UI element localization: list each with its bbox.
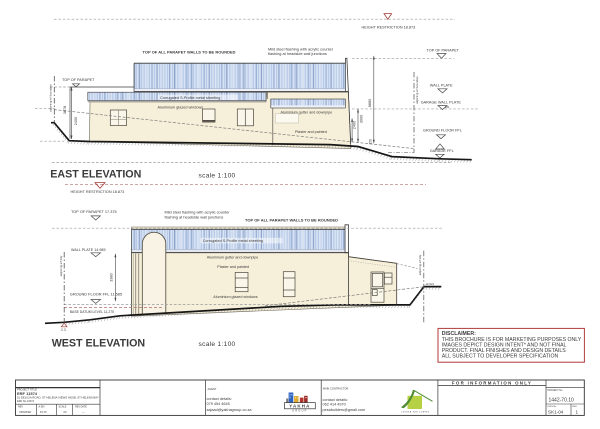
svg-text:11.11: 11.11: [61, 329, 67, 332]
svg-text:3000: 3000: [360, 115, 364, 123]
svg-text:GARAGE WALL PLATE: GARAGE WALL PLATE: [421, 101, 462, 105]
svg-text:Aluminium glazed windows: Aluminium glazed windows: [213, 295, 257, 299]
svg-text:ALL SUBJECT TO DEVELOPER SPECI: ALL SUBJECT TO DEVELOPER SPECIFICATION: [442, 353, 559, 359]
svg-text:TOP OF PARAPET: TOP OF PARAPET: [62, 78, 95, 82]
svg-text:079 454 4645: 079 454 4645: [207, 402, 230, 406]
svg-text:pesabuilders@gmail.com: pesabuilders@gmail.com: [323, 408, 366, 412]
svg-text:WALL PLATE: WALL PLATE: [430, 84, 453, 88]
svg-text:2400: 2400: [74, 117, 78, 125]
svg-text:GROUND FLOOR FFL: GROUND FLOOR FFL: [423, 129, 462, 133]
svg-text:8.170: 8.170: [40, 410, 47, 414]
svg-text:adjoining erf boundary: adjoining erf boundary: [415, 76, 419, 104]
svg-text:ERF No 11574: ERF No 11574: [17, 399, 35, 403]
svg-text:2400: 2400: [352, 121, 356, 129]
svg-text:51 DELICIA ROAD, ST HELENA VIE: 51 DELICIA ROAD, ST HELENA VIEWS HDSB, S…: [17, 396, 99, 400]
svg-text:3380: 3380: [110, 273, 114, 281]
svg-text:Plaster and painted: Plaster and painted: [217, 265, 249, 269]
svg-text:REV DATE: REV DATE: [75, 406, 87, 409]
svg-text:062 414 4970: 062 414 4970: [323, 402, 346, 406]
svg-text:flashing at headside wall junc: flashing at headside wall junctions: [165, 214, 224, 219]
svg-text:scale 1:100: scale 1:100: [199, 172, 236, 179]
svg-text:WALL PLATE 14.985: WALL PLATE 14.985: [71, 248, 106, 252]
svg-text:REV: REV: [18, 406, 23, 409]
svg-text:FOR INFORMATION ONLY: FOR INFORMATION ONLY: [452, 380, 532, 385]
svg-text:adjoining erf boundary: adjoining erf boundary: [49, 84, 53, 112]
svg-text:sajaad@yakhagroup.co.za: sajaad@yakhagroup.co.za: [207, 408, 253, 412]
svg-text:AGENT: AGENT: [208, 387, 217, 391]
svg-text:—: —: [82, 411, 85, 414]
svg-text:contact details:: contact details:: [207, 397, 232, 401]
svg-text:MAIN CONTRACTOR: MAIN CONTRACTOR: [323, 386, 349, 390]
svg-text:UPDATED: UPDATED: [19, 410, 31, 414]
svg-text:PROJECT No: PROJECT No: [548, 389, 564, 392]
svg-text:1: 1: [576, 409, 579, 414]
svg-text:Corrugated S-Profile metal she: Corrugated S-Profile metal sheeting: [203, 239, 263, 243]
svg-text:HEIGHT RESTRICTION 18.873: HEIGHT RESTRICTION 18.873: [71, 190, 125, 194]
svg-text:1442-70.10: 1442-70.10: [549, 398, 575, 404]
svg-text:GROUP: GROUP: [292, 410, 307, 413]
svg-text:REV: REV: [573, 406, 578, 408]
svg-text:3878: 3878: [63, 106, 67, 114]
svg-text:Aluminium gutter and downpipe: Aluminium gutter and downpipe: [207, 256, 259, 260]
svg-text:TOP OF ALL PARAPET WALLS TO BE: TOP OF ALL PARAPET WALLS TO BE ROUNDED: [245, 218, 338, 223]
svg-text:Plaster and painted: Plaster and painted: [295, 130, 327, 134]
svg-text:150: 150: [368, 139, 372, 145]
svg-text:TOP OF PARAPET: TOP OF PARAPET: [427, 49, 460, 53]
svg-text:TOP OF PARAPET 17.375: TOP OF PARAPET 17.375: [71, 210, 117, 214]
svg-text:DISCLAIMER:: DISCLAIMER:: [442, 331, 476, 337]
svg-text:Corrugated S-Profile metal she: Corrugated S-Profile metal sheeting: [160, 96, 220, 100]
svg-text:BASE DATUM LEVEL 11.275: BASE DATUM LEVEL 11.275: [70, 310, 114, 314]
svg-text:DWG No: DWG No: [548, 406, 558, 408]
svg-text:TOP OF ALL PARAPET WALLS TO BE: TOP OF ALL PARAPET WALLS TO BE ROUNDED: [143, 50, 236, 55]
svg-text:SK1-04: SK1-04: [548, 409, 564, 414]
svg-text:GARAGE FFL: GARAGE FFL: [430, 149, 454, 153]
svg-text:Aluminium gutter and downpipe: Aluminium gutter and downpipe: [281, 111, 333, 115]
svg-text:240: 240: [445, 106, 450, 109]
svg-text:HEIGHT RESTRICTION 18.873: HEIGHT RESTRICTION 18.873: [362, 25, 416, 29]
svg-text:adjoining erf bdy: adjoining erf bdy: [59, 255, 63, 276]
svg-text:Aluminium glazed windows: Aluminium glazed windows: [158, 105, 204, 109]
svg-text:SCALE: SCALE: [59, 406, 67, 409]
svg-text:A-DN: A-DN: [39, 406, 45, 409]
svg-text:12.021: 12.021: [426, 282, 435, 286]
svg-text:scale 1:100: scale 1:100: [199, 341, 236, 348]
svg-text:LESEA BUILDERS: LESEA BUILDERS: [401, 411, 429, 414]
svg-text:8880: 8880: [368, 99, 372, 107]
svg-text:EAST ELEVATION: EAST ELEVATION: [50, 168, 141, 180]
svg-text:flashing at headside wall junc: flashing at headside wall junctions: [268, 51, 327, 56]
svg-text:WEST ELEVATION: WEST ELEVATION: [52, 338, 145, 350]
svg-text:adjoining erf bdy: adjoining erf bdy: [418, 254, 422, 275]
svg-text:GROUND FLOOR FFL 11.585: GROUND FLOOR FFL 11.585: [70, 292, 122, 297]
svg-text:YAKHA: YAKHA: [289, 404, 310, 409]
